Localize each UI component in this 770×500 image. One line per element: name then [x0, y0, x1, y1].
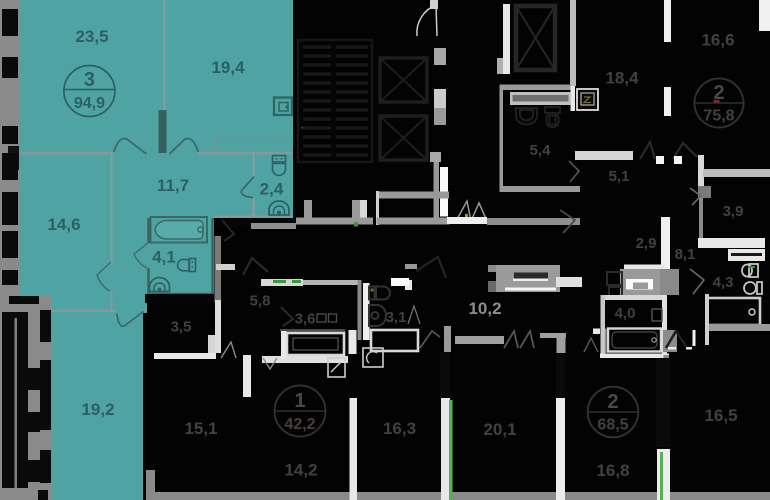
- svg-text:3,6: 3,6: [295, 311, 316, 328]
- svg-text:75,8: 75,8: [703, 108, 734, 125]
- svg-text:19,2: 19,2: [81, 400, 114, 419]
- svg-text:5,8: 5,8: [250, 293, 271, 310]
- svg-text:4,1: 4,1: [152, 248, 176, 267]
- svg-text:18,4: 18,4: [605, 69, 639, 88]
- svg-text:5,1: 5,1: [609, 168, 630, 185]
- svg-text:8,1: 8,1: [675, 246, 696, 263]
- svg-text:19,4: 19,4: [211, 58, 245, 77]
- svg-text:14,2: 14,2: [284, 461, 317, 480]
- svg-text:3: 3: [84, 69, 95, 91]
- svg-text:94,9: 94,9: [74, 95, 105, 112]
- svg-text:4,0: 4,0: [615, 305, 636, 322]
- svg-text:10,2: 10,2: [468, 299, 501, 318]
- svg-text:3,9: 3,9: [723, 203, 744, 220]
- svg-text:42,2: 42,2: [284, 416, 315, 433]
- svg-text:2,9: 2,9: [636, 235, 657, 252]
- svg-text:4,3: 4,3: [713, 274, 734, 291]
- svg-text:16,3: 16,3: [383, 419, 416, 438]
- svg-text:1: 1: [294, 390, 305, 412]
- svg-text:15,1: 15,1: [184, 419, 217, 438]
- svg-text:14,6: 14,6: [47, 215, 80, 234]
- svg-text:68,5: 68,5: [597, 417, 628, 434]
- svg-text:16,5: 16,5: [704, 406, 737, 425]
- svg-text:23,5: 23,5: [75, 27, 108, 46]
- svg-text:16,6: 16,6: [701, 31, 734, 50]
- svg-text:2,4: 2,4: [260, 180, 284, 199]
- svg-text:11,7: 11,7: [157, 176, 189, 195]
- svg-text:3,1: 3,1: [386, 309, 407, 326]
- svg-text:16,8: 16,8: [596, 461, 629, 480]
- svg-text:2: 2: [607, 391, 618, 413]
- svg-text:3,5: 3,5: [171, 319, 192, 336]
- svg-text:20,1: 20,1: [483, 420, 516, 439]
- svg-text:5,4: 5,4: [530, 142, 552, 159]
